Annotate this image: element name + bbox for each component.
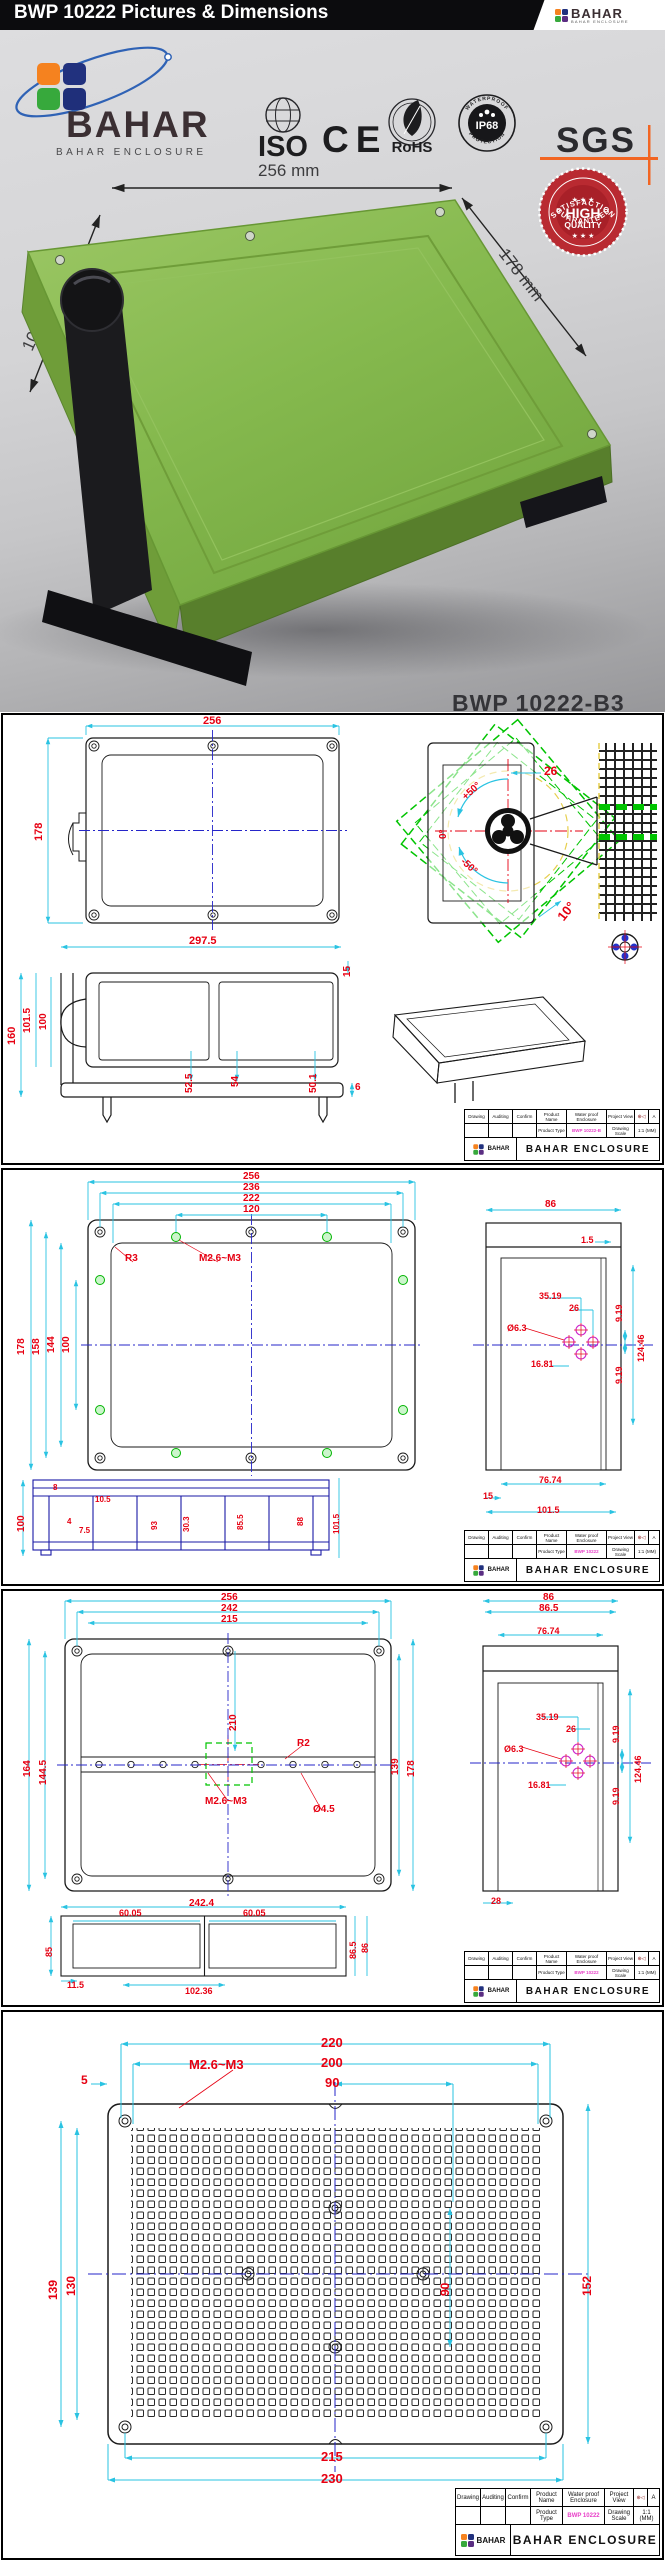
mounting-holes xyxy=(562,1323,600,1361)
overview-drawing-art xyxy=(3,715,662,1163)
enclosure-3d-sketch xyxy=(393,997,585,1103)
product-code: BWP 10222 xyxy=(567,1545,607,1558)
rohs-icon: RoHS xyxy=(389,99,435,156)
drawing-panel-mounting-plate: 22020090M2.6~M3513913090152215230 Drawin… xyxy=(1,2010,664,2560)
title-block: Drawing Auditing Confirm Product Name Wa… xyxy=(464,1109,660,1161)
page-title: BWP 10222 Pictures & Dimensions xyxy=(14,2,328,24)
projection-symbol-icon: ⊕◁ xyxy=(635,1531,649,1544)
svg-text:ISO: ISO xyxy=(258,131,308,163)
product-code: BWP 10222 xyxy=(563,2507,605,2524)
drawing-panel-overview: 25617826+50°0°-50°10°297.515160101.51005… xyxy=(1,713,664,1165)
svg-text:CE: CE xyxy=(322,119,387,160)
title-block-logo: BAHAR xyxy=(456,2525,511,2555)
badge-stars-bottom: ★ ★ ★ xyxy=(572,232,595,240)
svg-text:RoHS: RoHS xyxy=(392,139,433,156)
bahar-logo-icon xyxy=(555,9,568,22)
side-dims xyxy=(21,947,352,1097)
badge-stars-top: ★ ★ ★ xyxy=(572,196,595,204)
product-photo-section: BAHAR BAHAR ENCLOSURE ISO CE RoHS xyxy=(0,30,665,712)
svg-text:SGS: SGS xyxy=(556,121,636,160)
base-drawing-art xyxy=(3,1591,662,2005)
leaders xyxy=(208,1745,321,1809)
title-block: Drawing Auditing Confirm Product Name Wa… xyxy=(464,1530,660,1582)
right-dims xyxy=(486,1210,633,1512)
header-logo: BAHAR BAHAR ENCLOSURE xyxy=(534,0,665,30)
badge-line1: HIGH xyxy=(566,205,601,221)
drawing-panel-base: 256242215210R2M2.6~M3Ø4.5164144.51391782… xyxy=(1,1589,664,2007)
dim-lines xyxy=(29,1601,413,1891)
rotation-detail xyxy=(397,720,657,964)
product-code: BWP 10222 xyxy=(567,1966,607,1979)
title-block-logo: BAHAR xyxy=(465,1138,517,1160)
projection-symbol-icon: ⊕◁ xyxy=(635,1952,649,1965)
brand-name: BAHAR xyxy=(66,104,210,145)
centerlines xyxy=(81,1214,421,1476)
page: BWP 10222 Pictures & Dimensions BAHAR BA… xyxy=(0,0,665,2560)
centerlines xyxy=(79,730,347,930)
iso-icon: ISO xyxy=(258,98,308,163)
knob-detail xyxy=(608,930,642,964)
brand-subtitle: BAHAR ENCLOSURE xyxy=(56,147,206,158)
dim-width-label: 256 mm xyxy=(258,161,319,180)
bottom-section xyxy=(61,1916,346,1976)
knob xyxy=(485,808,531,854)
base-section-blue xyxy=(33,1480,329,1555)
title-block-logo: BAHAR xyxy=(465,1559,517,1581)
quality-badge: SATISFACTION GUARANTEED ★ ★ ★ HIGH QUALI… xyxy=(540,169,627,256)
product-photo-art: BAHAR BAHAR ENCLOSURE ISO CE RoHS xyxy=(0,30,665,712)
ce-icon: CE xyxy=(322,119,387,160)
right-section-view xyxy=(486,1223,621,1470)
side-view xyxy=(61,973,343,1122)
centerlines xyxy=(57,1633,399,1897)
title-block: Drawing Auditing Confirm Product Name Wa… xyxy=(455,2488,660,2556)
badge-line2: QUALITY xyxy=(564,220,602,230)
header-bar: BWP 10222 Pictures & Dimensions BAHAR BA… xyxy=(0,0,665,30)
product-code: BWP 10222-B xyxy=(567,1124,607,1137)
mounting-holes xyxy=(559,1742,597,1780)
lid-drawing-art xyxy=(3,1170,662,1584)
brand-subtitle: BAHAR ENCLOSURE xyxy=(571,20,629,24)
title-block: Drawing Auditing Confirm Product Name Wa… xyxy=(464,1951,660,2003)
right-section-view xyxy=(483,1646,618,1891)
svg-text:IP68: IP68 xyxy=(476,120,499,132)
projection-symbol-icon: ⊕◁ xyxy=(634,2489,648,2506)
bahar-logo: BAHAR BAHAR ENCLOSURE xyxy=(9,34,209,158)
projection-symbol-icon: ⊕◁ xyxy=(635,1110,649,1123)
dim-lines xyxy=(48,726,339,923)
mounting-plate-art xyxy=(3,2012,662,2558)
title-block-logo: BAHAR xyxy=(465,1980,517,2002)
brand-name: BAHAR xyxy=(571,7,629,20)
ip68-icon: IP68 WATERPROOF PROTECTION xyxy=(459,95,515,151)
drawing-panel-lid: 256236222120R3M2.6~M3178158144100861.535… xyxy=(1,1168,664,1586)
